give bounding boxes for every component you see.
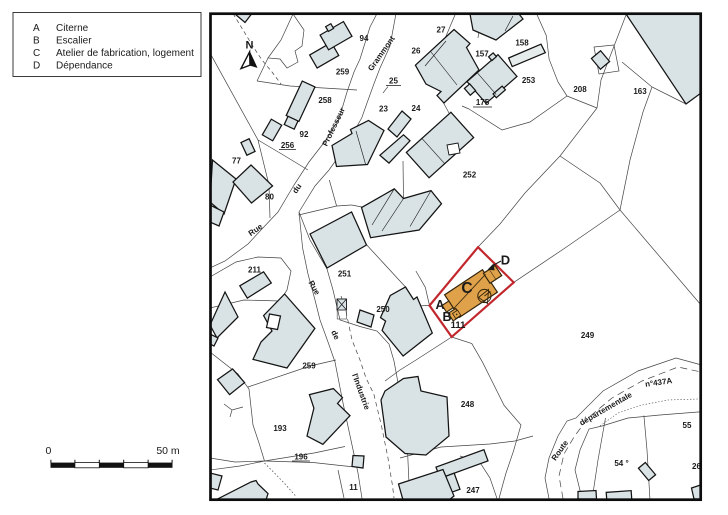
svg-text:80: 80 <box>265 193 274 202</box>
svg-text:249: 249 <box>581 331 595 340</box>
svg-text:259: 259 <box>302 362 316 371</box>
svg-text:Dépendance: Dépendance <box>56 61 113 72</box>
svg-text:77: 77 <box>232 157 241 166</box>
svg-text:94: 94 <box>360 34 369 43</box>
svg-text:Escalier: Escalier <box>56 36 92 47</box>
svg-text:157: 157 <box>475 50 489 59</box>
svg-text:208: 208 <box>573 85 587 94</box>
svg-text:211: 211 <box>248 266 261 275</box>
svg-text:50 m: 50 m <box>156 445 180 457</box>
svg-text:N: N <box>246 40 254 52</box>
svg-text:253: 253 <box>522 76 536 85</box>
svg-text:24: 24 <box>412 104 421 113</box>
svg-text:111: 111 <box>451 320 467 331</box>
svg-text:248: 248 <box>461 400 475 409</box>
svg-text:54 °: 54 ° <box>614 459 628 468</box>
svg-text:163: 163 <box>633 87 647 96</box>
svg-text:Citerne: Citerne <box>56 23 89 34</box>
svg-text:11: 11 <box>349 483 358 492</box>
svg-text:193: 193 <box>273 424 287 433</box>
svg-text:0: 0 <box>45 445 51 457</box>
svg-text:258: 258 <box>318 96 332 105</box>
svg-text:C: C <box>461 280 472 297</box>
svg-text:23: 23 <box>379 105 388 114</box>
svg-text:247: 247 <box>466 486 480 495</box>
svg-text:196: 196 <box>294 453 308 462</box>
svg-text:25: 25 <box>389 77 398 86</box>
svg-text:251: 251 <box>338 270 352 279</box>
svg-text:Atelier de fabrication, logeme: Atelier de fabrication, logement <box>56 48 194 59</box>
svg-text:250: 250 <box>376 305 390 314</box>
svg-text:B: B <box>33 36 40 47</box>
svg-text:26: 26 <box>412 47 421 56</box>
svg-text:175: 175 <box>476 98 490 107</box>
svg-text:27: 27 <box>437 26 446 35</box>
svg-text:C: C <box>33 48 40 59</box>
svg-text:256: 256 <box>281 141 295 150</box>
svg-text:55: 55 <box>683 421 692 430</box>
svg-text:92: 92 <box>300 130 309 139</box>
svg-text:D: D <box>33 61 40 72</box>
svg-text:A: A <box>33 23 40 34</box>
svg-text:252: 252 <box>463 171 477 180</box>
svg-text:B: B <box>442 310 451 324</box>
svg-text:158: 158 <box>515 39 529 48</box>
svg-text:259: 259 <box>336 68 350 77</box>
svg-text:D: D <box>501 253 510 268</box>
